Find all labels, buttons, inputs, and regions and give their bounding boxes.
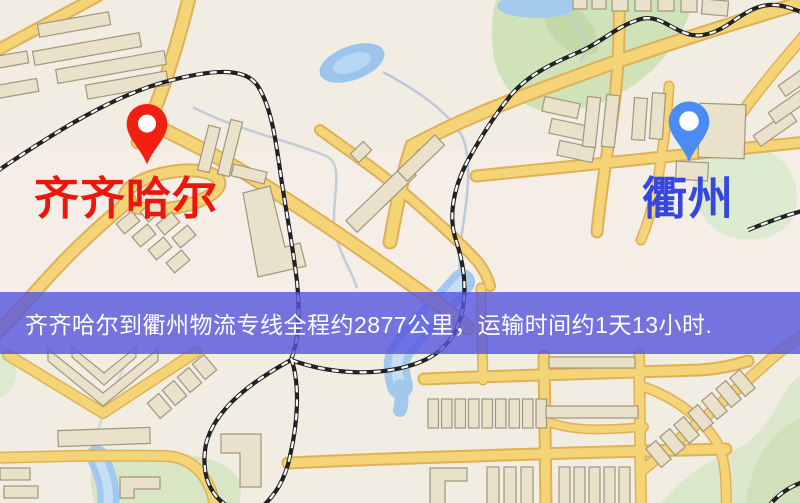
map-canvas [0, 0, 800, 503]
red-map-pin-icon [127, 104, 168, 165]
route-info-text: 齐齐哈尔到衢州物流专线全程约2877公里，运输时间约1天13小时. [25, 306, 712, 340]
origin-city-label: 齐齐哈尔 [34, 176, 218, 221]
pin-hole [679, 111, 699, 131]
origin-pin-icon [124, 102, 170, 172]
pin-hole [138, 115, 156, 133]
destination-pin-icon [666, 99, 712, 170]
destination-city-label: 衢州 [642, 176, 734, 221]
blue-map-pin-icon [669, 102, 710, 163]
map-view: 齐齐哈尔 衢州 齐齐哈尔到衢州物流专线全程约2877公里，运输时间约1天13小时… [0, 0, 800, 503]
route-info-banner: 齐齐哈尔到衢州物流专线全程约2877公里，运输时间约1天13小时. [0, 292, 800, 354]
